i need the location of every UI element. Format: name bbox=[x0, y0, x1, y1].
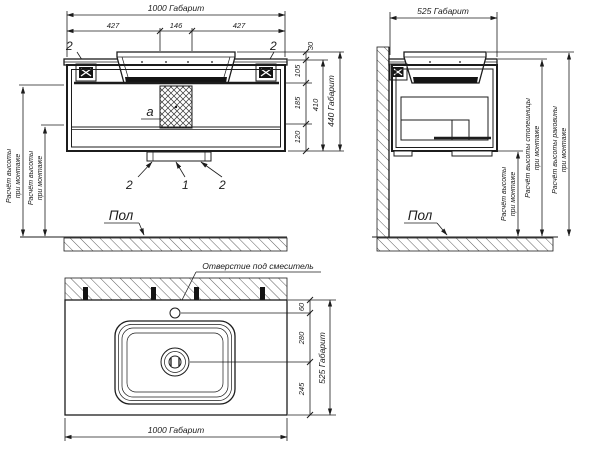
note-mount-line2: при монтаже bbox=[510, 172, 517, 217]
top-wall-strip bbox=[65, 278, 287, 303]
note-mount-a-line2: при монтаже bbox=[15, 154, 22, 199]
dim-30: 30 bbox=[306, 41, 315, 50]
callout-drain-left: 2 bbox=[125, 178, 133, 192]
note-mount-b-line2: при монтаже bbox=[37, 156, 44, 201]
dim-60: 60 bbox=[297, 302, 306, 311]
note-mount-a-line1: Расчёт высоты bbox=[6, 148, 13, 203]
dim-280: 280 bbox=[297, 331, 306, 345]
side-wall bbox=[377, 47, 389, 237]
side-floor: Пол bbox=[372, 208, 558, 251]
top-view: Отверстие под смеситель bbox=[65, 261, 336, 441]
technical-drawing-vanity: 1000 Габарит 427 146 427 2 2 bbox=[0, 0, 600, 449]
dim-245: 245 bbox=[297, 382, 306, 396]
callout-drain-right: 2 bbox=[218, 178, 226, 192]
callout-drain-center: 1 bbox=[182, 178, 189, 192]
note-mount-line1: Расчёт высоты bbox=[501, 166, 508, 221]
floor-label-front: Пол bbox=[109, 208, 134, 223]
callout-siphon-a: a bbox=[146, 104, 153, 119]
callout-bracket-right: 2 bbox=[269, 39, 277, 53]
faucet-hole-label: Отверстие под смеситель bbox=[202, 261, 313, 271]
dim-105: 105 bbox=[293, 64, 302, 77]
callout-bracket-left: 2 bbox=[65, 39, 73, 53]
dim-120: 120 bbox=[293, 130, 302, 143]
front-right-dimensions: 30 105 185 120 410 440 Габарит bbox=[237, 41, 344, 154]
front-sink bbox=[117, 52, 235, 83]
dim-410: 410 bbox=[311, 98, 320, 111]
front-left-dimensions: Расчёт высоты при монтаже Расчёт высоты … bbox=[6, 85, 64, 236]
side-sink bbox=[404, 52, 486, 83]
dim-427-left: 427 bbox=[107, 21, 120, 30]
side-top-dimension: 525 Габарит bbox=[390, 6, 497, 57]
front-bracket-right bbox=[256, 64, 276, 81]
dim-width-total: 1000 Габарит bbox=[148, 3, 204, 13]
front-view: 1000 Габарит 427 146 427 2 2 bbox=[6, 3, 344, 251]
front-drain-unit: 2 1 2 bbox=[125, 152, 226, 192]
note-sink-line2: при монтаже bbox=[561, 128, 568, 173]
dim-427-right: 427 bbox=[233, 21, 246, 30]
front-top-dimensions: 1000 Габарит 427 146 427 bbox=[67, 3, 285, 57]
dim-width-total-top: 1000 Габарит bbox=[148, 425, 204, 435]
top-right-dimensions: 60 280 245 525 Габарит bbox=[288, 297, 336, 418]
dim-146: 146 bbox=[170, 21, 183, 30]
dim-depth-total-top: 525 Габарит bbox=[317, 332, 327, 384]
side-right-dimensions: Расчёт высоты при монтаже Расчёт высоты … bbox=[487, 52, 574, 236]
top-countertop bbox=[65, 300, 311, 415]
note-mount-b-line1: Расчёт высоты bbox=[28, 150, 35, 205]
side-view: 525 Габарит bbox=[372, 6, 574, 251]
note-countertop-line2: при монтаже bbox=[534, 126, 541, 171]
floor-label-side: Пол bbox=[408, 208, 433, 223]
front-bracket-left bbox=[76, 64, 96, 81]
dim-height-total: 440 Габарит bbox=[326, 75, 336, 127]
faucet-hole bbox=[170, 308, 180, 318]
front-floor: Пол bbox=[20, 208, 287, 251]
dim-185: 185 bbox=[293, 96, 302, 109]
dim-depth-total: 525 Габарит bbox=[417, 6, 469, 16]
top-bottom-dimension: 1000 Габарит bbox=[65, 418, 287, 441]
note-countertop-line1: Расчёт высоты столешницы bbox=[525, 97, 532, 198]
note-sink-line1: Расчёт высоты раковины bbox=[552, 105, 559, 194]
